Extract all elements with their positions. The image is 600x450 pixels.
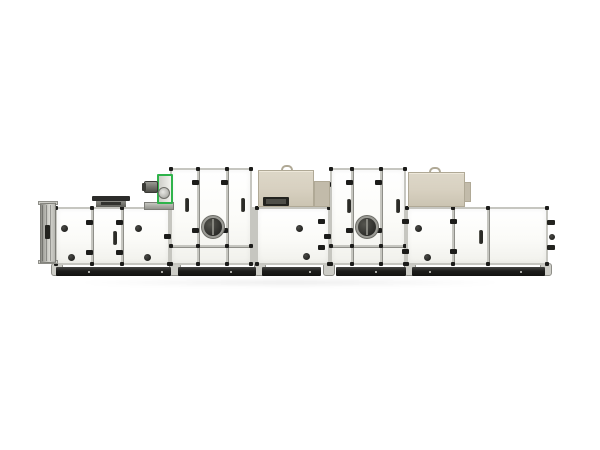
inlet-louver-latch — [45, 225, 50, 239]
porthole-bar — [366, 219, 368, 235]
hinge — [318, 219, 325, 224]
roof-box-1-vent-slot-inner — [266, 199, 286, 204]
corner-cap — [379, 244, 383, 248]
door-knob — [415, 225, 422, 232]
air-handling-unit — [0, 0, 600, 450]
base-segment — [262, 267, 321, 276]
hinge — [324, 234, 331, 239]
corner-cap — [350, 244, 354, 248]
hinge — [116, 250, 123, 255]
corner-cap — [405, 262, 409, 266]
roof-box-1-wing — [314, 181, 330, 207]
corner-cap — [249, 262, 253, 266]
hinge — [318, 245, 325, 250]
hinge — [192, 228, 199, 233]
door-handle — [396, 199, 400, 213]
base-segment — [336, 267, 406, 276]
corner-cap — [225, 262, 229, 266]
door-frame-divider — [121, 207, 124, 265]
door-knob — [144, 254, 151, 261]
corner-cap — [196, 167, 200, 171]
hinge — [116, 220, 123, 225]
corner-cap — [196, 262, 200, 266]
corner-cap — [379, 262, 383, 266]
roof-vent-cap — [92, 196, 130, 201]
corner-cap — [249, 244, 253, 248]
door-handle — [347, 199, 351, 213]
corner-cap — [451, 262, 455, 266]
corner-cap — [329, 244, 333, 248]
base-bolt — [161, 271, 163, 273]
corner-cap — [486, 262, 490, 266]
door-handle — [113, 231, 117, 245]
corner-cap — [350, 262, 354, 266]
door-frame-divider — [452, 207, 455, 265]
base-bolt — [309, 271, 311, 273]
hinge — [346, 180, 353, 185]
base-bolt — [230, 271, 232, 273]
roof-box-2 — [408, 172, 465, 207]
base-bolt — [429, 271, 431, 273]
base-bolt — [520, 271, 522, 273]
horizontal-frame-member — [170, 245, 252, 248]
porthole-bar — [212, 219, 214, 235]
door-knob — [135, 225, 142, 232]
unit-section-3 — [256, 207, 330, 265]
hinge — [86, 250, 93, 255]
door-frame-divider — [487, 207, 490, 265]
corner-cap — [249, 167, 253, 171]
corner-cap — [329, 167, 333, 171]
corner-cap — [403, 167, 407, 171]
base-segment — [178, 267, 256, 276]
base-bolt — [88, 271, 90, 273]
door-frame-divider — [91, 207, 94, 265]
corner-cap — [120, 262, 124, 266]
door-knob — [61, 225, 68, 232]
base-bolt — [375, 271, 377, 273]
hinge — [450, 219, 457, 224]
hinge — [402, 249, 409, 254]
door-knob — [303, 253, 310, 260]
corner-cap — [90, 262, 94, 266]
door-knob — [424, 254, 431, 261]
hinge — [86, 220, 93, 225]
door-handle — [185, 198, 189, 212]
corner-cap — [169, 262, 173, 266]
corner-cap — [225, 244, 229, 248]
fan-scroll — [158, 187, 170, 199]
corner-cap — [545, 206, 549, 210]
door-knob — [68, 254, 75, 261]
hinge — [402, 219, 409, 224]
ground-shadow — [70, 279, 510, 286]
door-handle — [479, 230, 483, 244]
product-photo — [0, 0, 600, 450]
corner-cap — [486, 206, 490, 210]
corner-cap — [379, 167, 383, 171]
base-segment — [412, 267, 545, 276]
horizontal-frame-member — [330, 245, 406, 248]
corner-cap — [169, 244, 173, 248]
edge-hinge-tab — [547, 245, 555, 250]
door-handle — [241, 198, 245, 212]
hinge — [450, 249, 457, 254]
hinge — [346, 228, 353, 233]
corner-cap — [329, 262, 333, 266]
hinge — [375, 180, 382, 185]
corner-cap — [196, 244, 200, 248]
corner-cap — [545, 262, 549, 266]
edge-hinge-tab — [547, 220, 555, 225]
corner-cap — [225, 167, 229, 171]
corner-cap — [90, 206, 94, 210]
base-segment — [56, 267, 171, 276]
edge-knob — [549, 234, 555, 240]
blower-motor — [144, 181, 158, 193]
hinge — [164, 234, 171, 239]
hinge — [221, 180, 228, 185]
roof-box-2-wing — [464, 182, 471, 202]
blower-motor-cap — [142, 183, 146, 191]
door-knob — [296, 225, 303, 232]
corner-cap — [169, 167, 173, 171]
corner-cap — [255, 262, 259, 266]
roof-vent-slot — [101, 202, 121, 205]
corner-cap — [350, 167, 354, 171]
hinge — [192, 180, 199, 185]
